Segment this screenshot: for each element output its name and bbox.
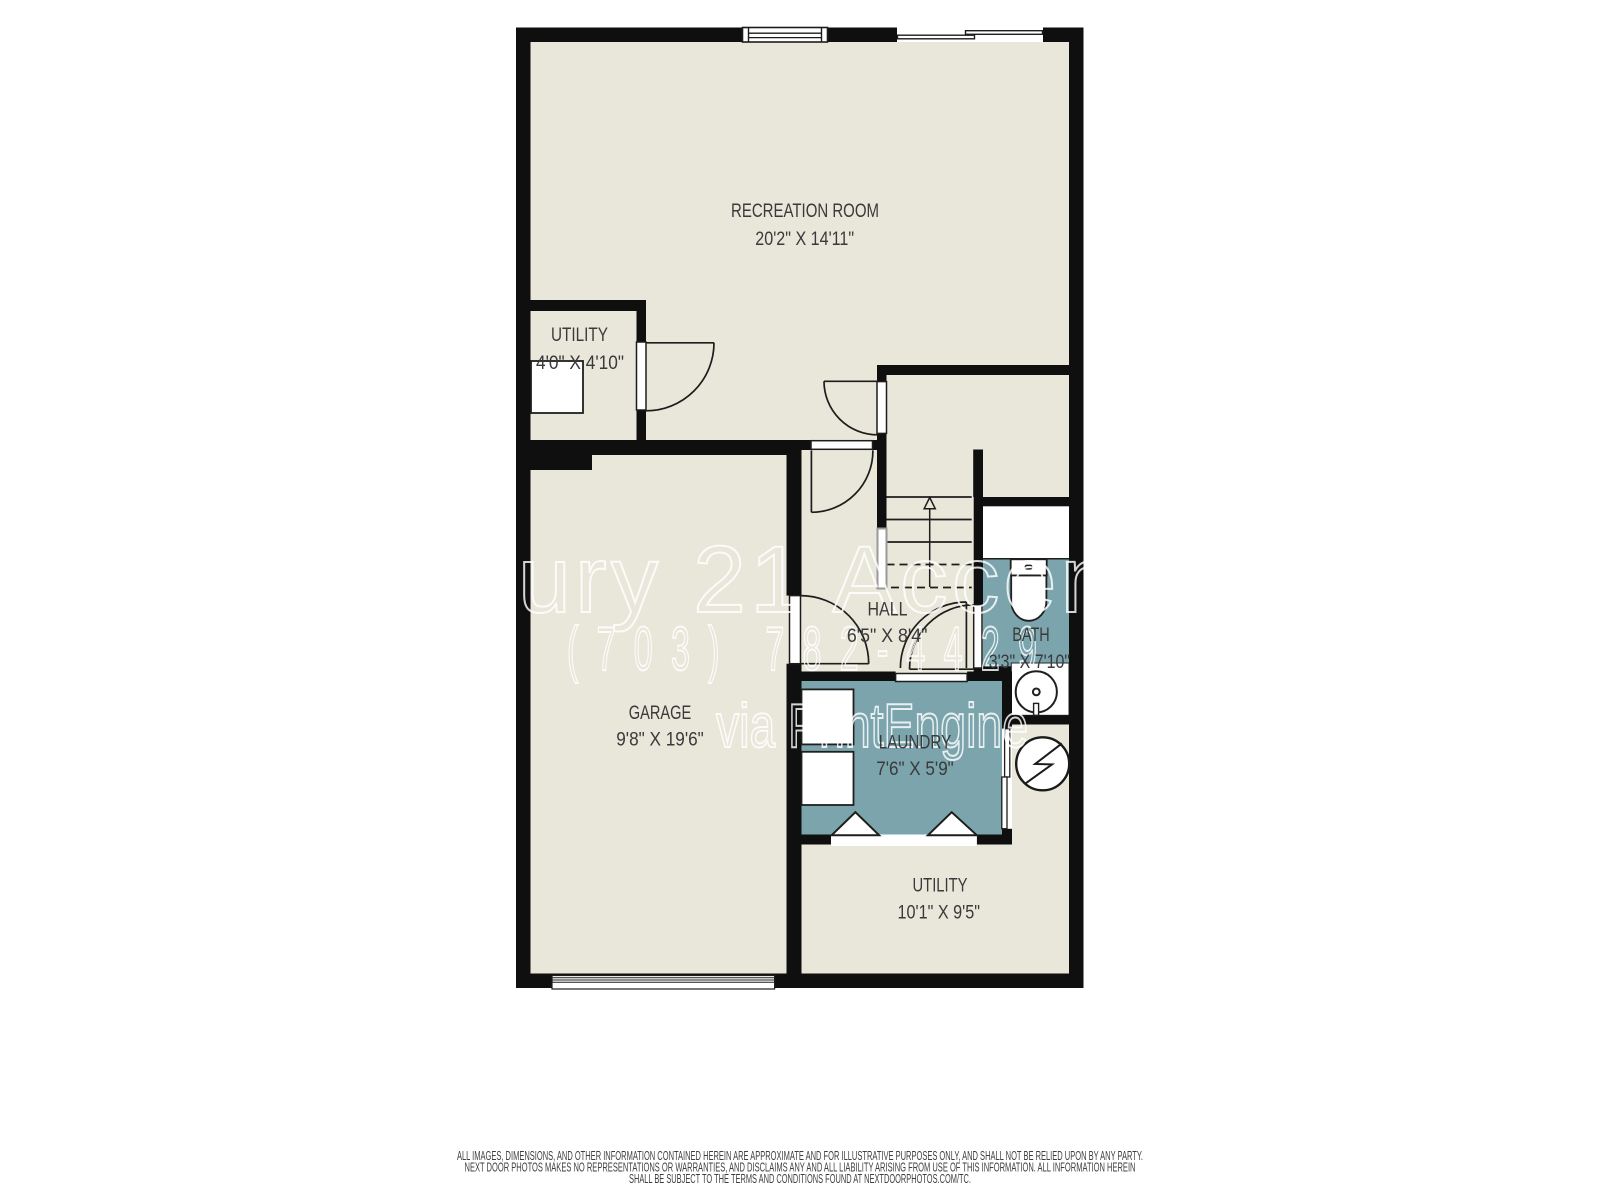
svg-text:10'1" X 9'5": 10'1" X 9'5" [898, 902, 981, 924]
svg-text:via PrintEngine: via PrintEngine [716, 692, 1028, 761]
svg-text:4'0" X 4'10": 4'0" X 4'10" [536, 352, 624, 374]
svg-text:LAUNDRY: LAUNDRY [879, 732, 952, 754]
svg-text:HALL: HALL [868, 599, 908, 621]
svg-text:SHALL BE SUBJECT TO THE TERMS: SHALL BE SUBJECT TO THE TERMS AND CONDIT… [629, 1172, 971, 1186]
svg-text:BATH: BATH [1012, 624, 1050, 646]
svg-text:3'3" X 7'10": 3'3" X 7'10" [989, 651, 1070, 673]
svg-text:GARAGE: GARAGE [629, 702, 692, 724]
svg-text:20'2" X 14'11": 20'2" X 14'11" [755, 228, 854, 250]
svg-text:RECREATION ROOM: RECREATION ROOM [731, 200, 879, 222]
svg-text:7'6" X 5'9": 7'6" X 5'9" [876, 758, 954, 780]
svg-text:UTILITY: UTILITY [551, 324, 608, 346]
svg-text:UTILITY: UTILITY [913, 875, 968, 897]
svg-text:6'5" X 8'4": 6'5" X 8'4" [847, 625, 928, 647]
svg-text:9'8" X 19'6": 9'8" X 19'6" [616, 729, 704, 751]
